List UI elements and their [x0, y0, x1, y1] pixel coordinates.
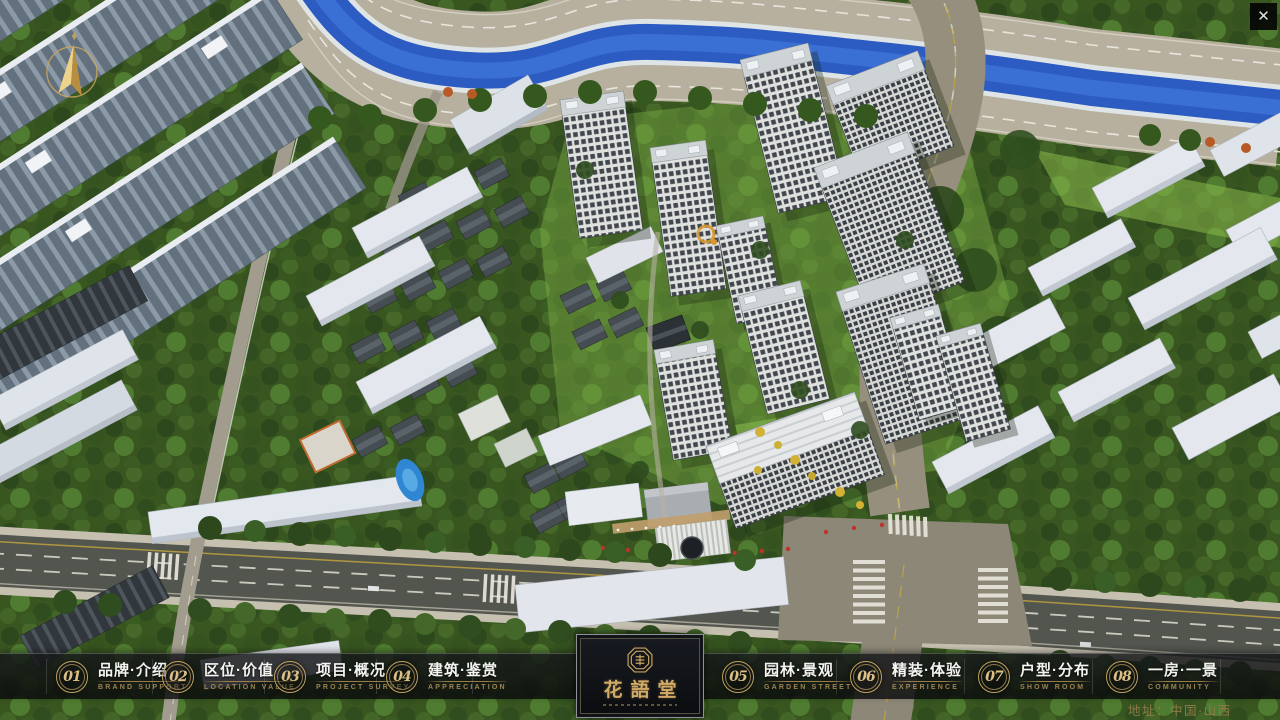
address-text: 地址：中国·山西	[1128, 700, 1232, 719]
menu-number-badge: 05	[722, 661, 754, 693]
menu-number-badge: 03	[274, 661, 306, 693]
menu-item-subtitle: COMMUNITY	[1148, 684, 1218, 691]
menu-divider	[964, 659, 965, 694]
logo-title: 花語堂	[595, 675, 684, 702]
menu-item-title: 户型·分布	[1020, 662, 1090, 679]
menu-item-underline	[1020, 681, 1090, 682]
menu-number-badge: 01	[56, 661, 88, 693]
menu-item-title: 园林·景观	[764, 662, 853, 679]
menu-item-garden-landscape[interactable]: 05 园林·景观 GARDEN STREET	[722, 654, 853, 699]
menu-item-underline	[1148, 681, 1218, 682]
seal-emblem-icon	[627, 647, 653, 673]
menu-number-badge: 04	[386, 661, 418, 693]
menu-number-badge: 07	[978, 661, 1010, 693]
menu-number-badge: 02	[162, 661, 194, 693]
menu-number-badge: 06	[850, 661, 882, 693]
close-button[interactable]: ✕	[1250, 3, 1277, 30]
menu-item-underline	[892, 681, 962, 682]
sales-presentation-window: ✕ 01 品牌·介绍 BRAND SUPPORT 02 区位·价值 LOCATI…	[0, 0, 1280, 720]
menu-item-architecture[interactable]: 04 建筑·鉴赏 APPRECIATION	[386, 654, 507, 699]
masterplan-render	[0, 0, 1280, 720]
logo-plaque[interactable]: 花語堂	[576, 634, 704, 718]
menu-item-underline	[764, 681, 853, 682]
menu-divider	[46, 659, 47, 694]
menu-item-subtitle: APPRECIATION	[428, 684, 507, 691]
menu-item-underline	[428, 681, 507, 682]
menu-divider	[1220, 659, 1221, 694]
menu-item-subtitle: EXPERIENCE	[892, 684, 962, 691]
logo-subtext-rule	[603, 704, 677, 706]
menu-item-room-view[interactable]: 08 一房·一景 COMMUNITY	[1106, 654, 1218, 699]
logo-frame: 花語堂	[580, 638, 700, 714]
menu-divider	[1092, 659, 1093, 694]
menu-item-title: 一房·一景	[1148, 662, 1218, 679]
menu-item-title: 建筑·鉴赏	[428, 662, 507, 679]
menu-item-subtitle: GARDEN STREET	[764, 684, 853, 691]
menu-item-title: 精装·体验	[892, 662, 962, 679]
menu-item-unit-layouts[interactable]: 07 户型·分布 SHOW ROOM	[978, 654, 1090, 699]
menu-number-badge: 08	[1106, 661, 1138, 693]
menu-item-finish-experience[interactable]: 06 精装·体验 EXPERIENCE	[850, 654, 962, 699]
menu-item-subtitle: SHOW ROOM	[1020, 684, 1090, 691]
